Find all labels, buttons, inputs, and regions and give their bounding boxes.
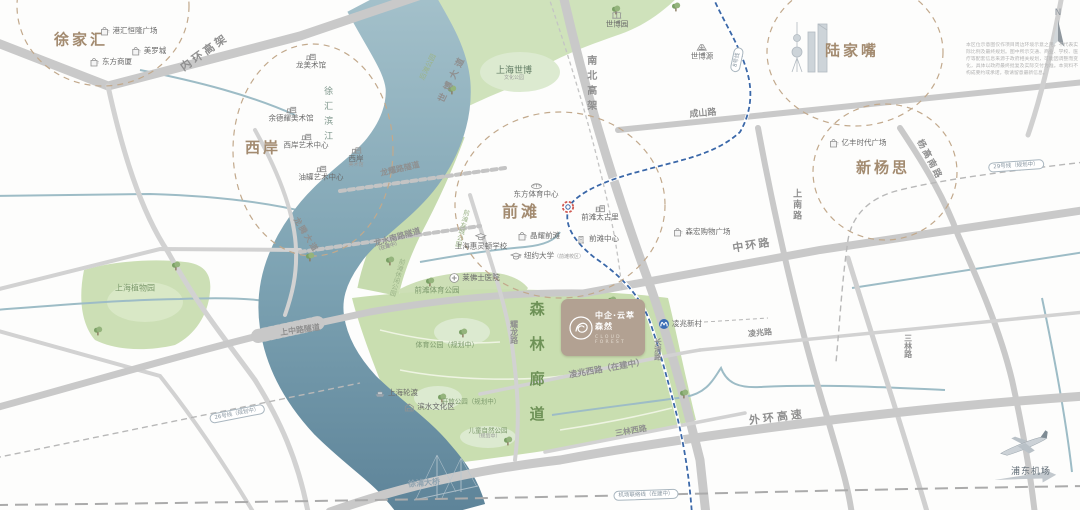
yifeng-times-plaza: 亿丰时代广场 [828,137,887,149]
tower-icon [575,233,587,245]
west-bund-art-center: 西岸艺术中心 [284,130,329,151]
shanghai-botanical-garden: 上海植物园 [115,283,155,292]
district-xian: 西岸 [245,139,281,156]
bag-icon [672,226,684,238]
school-icon [510,250,522,262]
wellington-college-shanghai: 上海惠灵顿学校 [455,231,508,252]
tank-art-center: 油罐艺术中心 [299,162,344,183]
long-museum: 龙美术馆 [296,50,326,71]
expo-culture-park: 上海世博文化公园 [496,66,532,82]
lingzhao-xincun-station: 凌兆新村 [658,318,702,330]
disclaimer-text: 本区位示意图仅作项目周边环境示意之用，不代表实际比例及最终规划。图中所示交通、商… [966,42,1078,77]
ferry-icon [374,387,386,399]
bag-icon [828,137,840,149]
metro-line-29-planned: 29号线（规划中） [988,159,1044,173]
district-qiantan: 前滩 [502,203,540,221]
ganghui-henglong-plaza: 港汇恒隆广场 [99,25,158,37]
qiantan-taikoo-li: 前滩太古里 [581,202,619,223]
map-labels-layer: 徐家汇西岸前滩陆家嘴新杨思内环高架南北高架成山路杨高南路上南路中环路世博大道龙腾… [0,0,1080,510]
bag-icon [516,230,528,242]
culture-icon [403,401,415,413]
project-logo-icon [567,314,595,342]
oriental-department-store: 东方商厦 [88,56,132,68]
yanggaonan-road: 杨高南路 [914,138,944,182]
yaolong-road: 耀龙路 [509,320,518,344]
bag-icon [88,56,100,68]
district-xinyangsi: 新杨思 [856,159,910,176]
expo-source: 世博源 [691,41,714,62]
metro-line-26-planned: 26号线（规划中） [209,404,265,425]
airport-link-line: 机场联络线（在建中） [613,489,678,502]
shangzhong-road-tunnel: 上中路隧道 [280,323,321,338]
chengshan-road: 成山路 [689,108,717,121]
metro-line-8: 8号线 [729,47,744,73]
houtan-park: 后滩公园 [418,53,438,82]
sanlinxi-road: 三林西路 [614,424,647,439]
binshui-culture-zone: 滨水文化区 [403,401,455,413]
pudong-airport: 浦东机场 [988,434,1074,477]
longshuinan-road-tunnel: 龙水南路隧道（在建中） [373,226,423,254]
senhong-shopping-plaza: 森宏购物广场 [672,226,731,238]
sanlin-road: 三林路 [903,334,912,358]
bag-icon [99,25,111,37]
qiantan-xiuxian-park: 前滩休闲公园 [387,257,405,297]
hospital-icon [448,272,460,284]
oriental-sports-center: 东方体育中心 [514,179,559,200]
xupu-bridge: 徐浦大桥 [408,477,441,489]
nanbei-elevated: 南北高架 [584,55,596,115]
nyu-shanghai-qiantan: 纽约大学（前滩校区） [510,250,584,262]
shangnan-road: 上南路 [791,189,801,222]
neihuan-elevated: 内环高架 [178,32,231,74]
project-card: 中企·云萃森然 CLOUD FOREST [561,299,645,356]
children-nature-park-planned: 儿童自然公园（规划中） [469,427,508,440]
sports-park-planned: 体育公园（规划中） [416,341,479,349]
lingzhaoxi-road: 凌兆西路（在建中） [568,359,645,382]
longteng-avenue: 龙腾大道 [292,216,321,255]
west-bund-museum: 西岸美术馆 [348,143,363,169]
zhonghuan-road: 中环路 [732,237,772,256]
crystal-plaza-qiantan: 晶耀前滩 [516,230,560,242]
raffles-hospital: 莱佛士医院 [448,272,500,284]
yuz-museum: 余德耀美术馆 [269,103,314,124]
longyao-road-tunnel: 龙耀路隧道 [379,160,420,178]
expo-garden: 世博园 [606,9,629,30]
changqing-road: 长清路 [653,338,662,361]
shibo-avenue: 世博大道 [437,53,469,104]
project-name: 中企·云萃森然 [595,310,639,332]
district-lujiazui: 陆家嘴 [825,42,879,59]
waihuan-expressway: 外环高速 [748,408,805,427]
pudong-airport-label: 浦东机场 [988,464,1074,477]
compass-north-label: N [1045,8,1071,18]
shanghai-ferry: 上海轮渡 [374,387,418,399]
location-map: 徐家汇西岸前滩陆家嘴新杨思内环高架南北高架成山路杨高南路上南路中环路世博大道龙腾… [0,0,1080,510]
lingzhao-road: 凌兆路 [748,327,773,338]
metro-icon [658,318,670,330]
metro-city: 美罗城 [130,45,167,57]
forest-corridor: 森林廊道 [527,301,544,441]
qiantan-center: 前滩中心 [575,233,619,245]
qiantan-sports-park: 前滩体育公园 [415,287,460,296]
project-name-en: CLOUD FOREST [595,335,639,345]
